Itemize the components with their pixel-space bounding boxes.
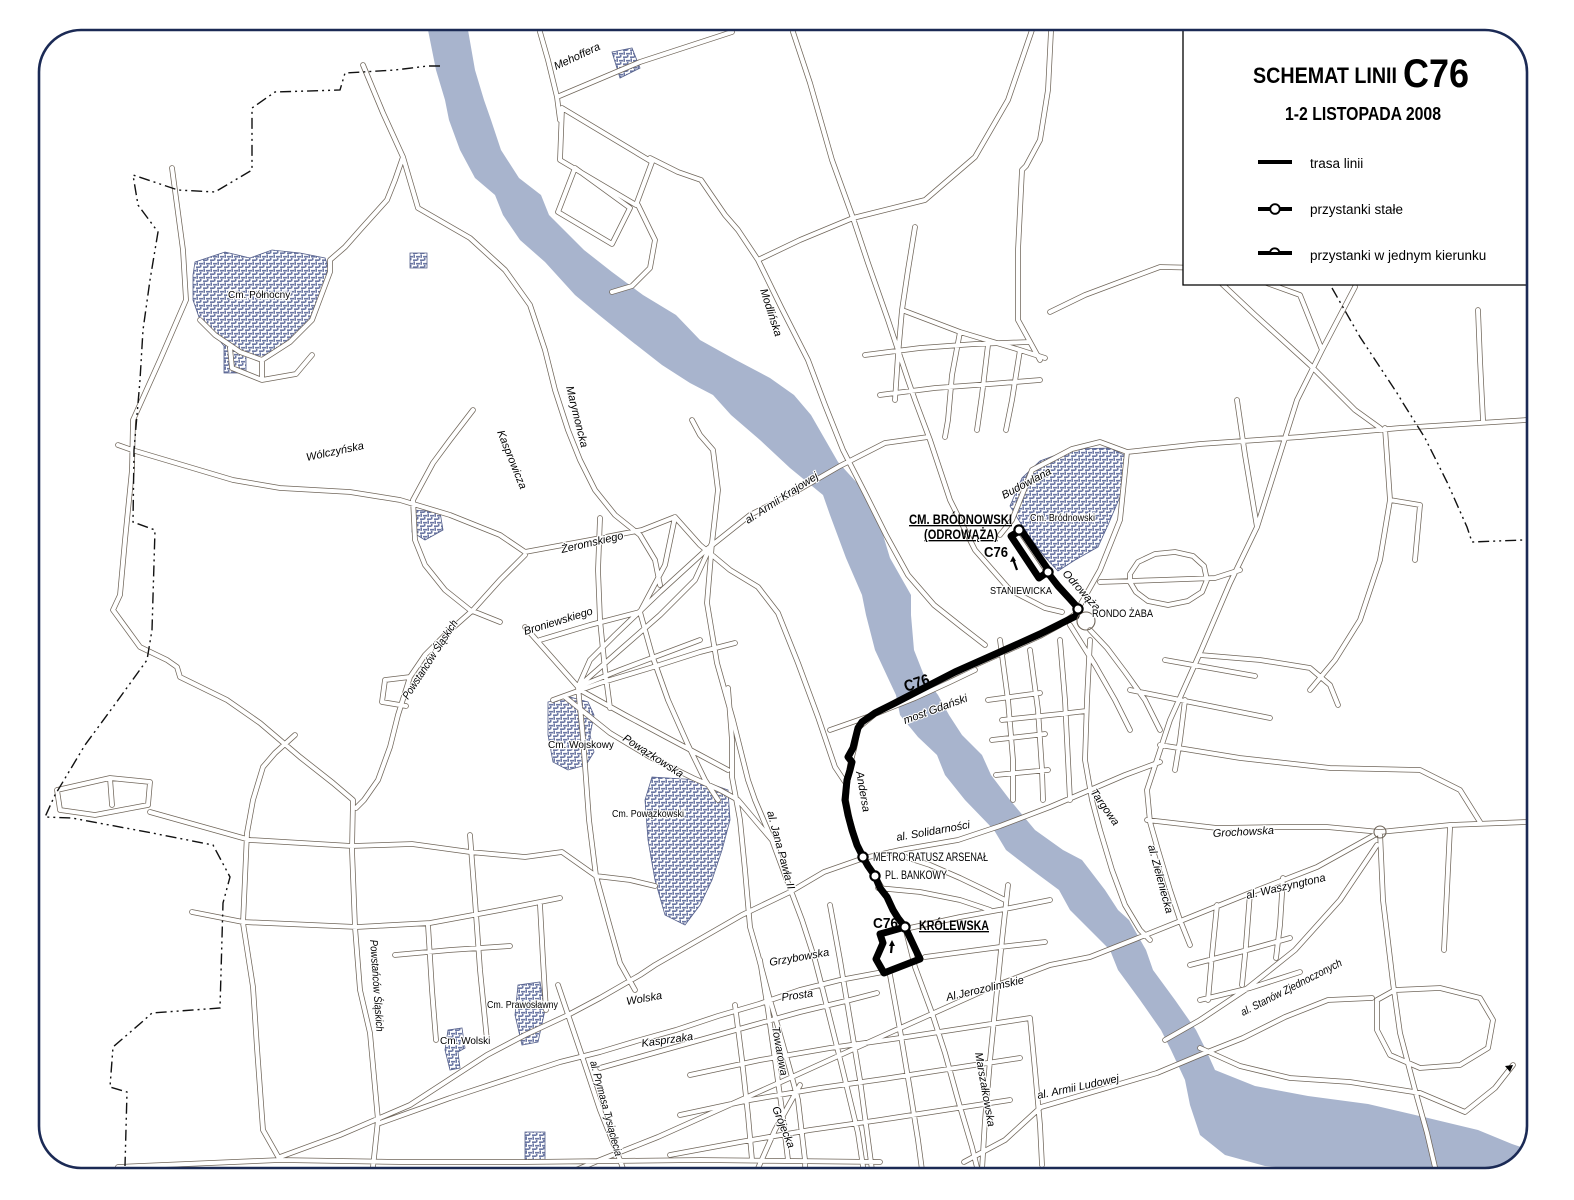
svg-text:1-2 LISTOPADA 2008: 1-2 LISTOPADA 2008 — [1285, 104, 1441, 124]
svg-text:Cm. Wojskowy: Cm. Wojskowy — [548, 740, 614, 751]
svg-text:Cm. Bródnowski: Cm. Bródnowski — [1030, 513, 1095, 524]
svg-text:(ODROWĄŻA): (ODROWĄŻA) — [924, 527, 998, 542]
svg-text:przystanki stałe: przystanki stałe — [1310, 202, 1403, 217]
svg-text:C76: C76 — [1403, 52, 1469, 96]
svg-text:Cm. Prawosławny: Cm. Prawosławny — [487, 1000, 558, 1011]
svg-text:Cm. Północny: Cm. Północny — [228, 290, 290, 301]
svg-text:przystanki w jednym kierunku: przystanki w jednym kierunku — [1310, 248, 1486, 263]
svg-text:Cm. Wolski: Cm. Wolski — [440, 1036, 490, 1047]
svg-text:CM. BRÓDNOWSKI: CM. BRÓDNOWSKI — [909, 512, 1012, 527]
svg-text:PL. BANKOWY: PL. BANKOWY — [885, 870, 947, 882]
svg-text:METRO RATUSZ ARSENAŁ: METRO RATUSZ ARSENAŁ — [873, 852, 988, 864]
svg-text:STANIEWICKA: STANIEWICKA — [990, 585, 1052, 597]
svg-text:KRÓLEWSKA: KRÓLEWSKA — [919, 918, 989, 933]
svg-text:trasa linii: trasa linii — [1310, 156, 1363, 171]
svg-text:Cm. Powązkowski: Cm. Powązkowski — [612, 809, 684, 820]
svg-text:C76: C76 — [873, 915, 898, 932]
svg-text:SCHEMAT LINII: SCHEMAT LINII — [1253, 63, 1397, 88]
svg-text:RONDO ŻABA: RONDO ŻABA — [1092, 607, 1154, 620]
svg-text:C76: C76 — [984, 545, 1008, 561]
